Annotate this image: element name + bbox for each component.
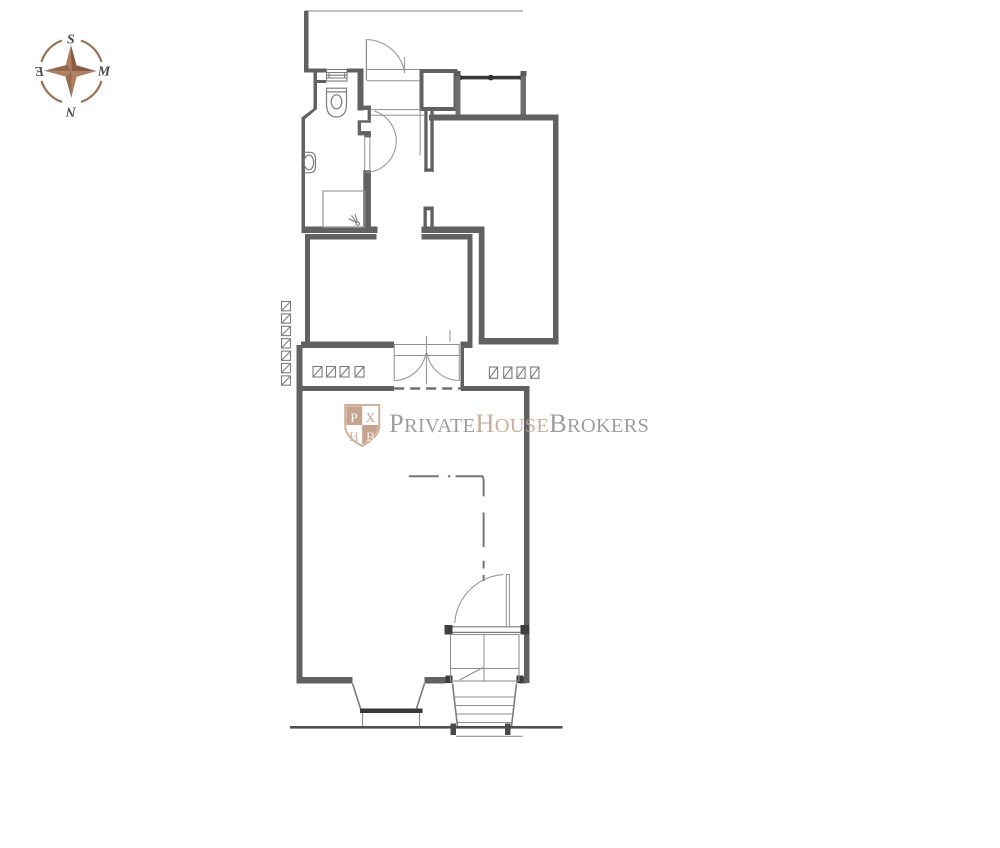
svg-text:E: E xyxy=(35,65,45,80)
svg-text:M: M xyxy=(97,65,111,80)
svg-text:B: B xyxy=(366,429,375,444)
svg-text:N: N xyxy=(65,104,77,119)
svg-text:H: H xyxy=(349,429,358,444)
svg-text:P: P xyxy=(350,410,357,425)
svg-text:S: S xyxy=(67,33,75,48)
svg-text:X: X xyxy=(366,410,376,425)
